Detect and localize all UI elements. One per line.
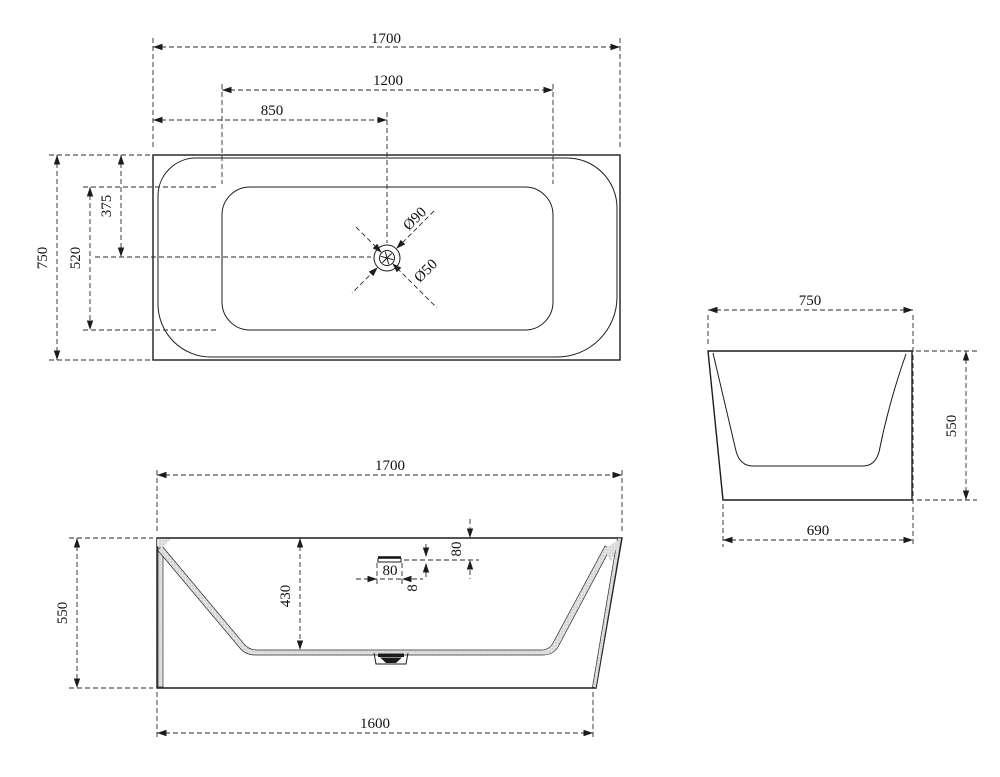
dim-label: 750	[35, 247, 51, 270]
drain-grate-icon	[381, 252, 394, 265]
dim-label: 1700	[375, 458, 405, 474]
dim-side-height: 550	[916, 351, 977, 500]
drain-body	[380, 658, 402, 664]
arrowhead-icon	[87, 187, 93, 197]
arrowhead-icon	[54, 155, 60, 165]
arrowhead-icon	[153, 44, 163, 50]
arrowhead-icon	[74, 679, 80, 689]
arrowhead-icon	[423, 563, 429, 573]
dim-top-overall-width: 750	[35, 155, 151, 360]
dim-top-basin-width: 520	[68, 187, 219, 330]
dim-front-base-length: 1600	[157, 692, 593, 740]
dim-side-width: 750	[708, 293, 913, 546]
dimension-line	[153, 112, 387, 243]
arrowhead-icon	[613, 472, 623, 478]
technical-drawing-canvas: Ø90 Ø50 1700 1200 850 750	[0, 0, 1000, 777]
top-view: Ø90 Ø50 1700 1200 850 750	[35, 31, 620, 360]
arrowhead-icon	[54, 351, 60, 361]
dim-front-inner-depth: 430	[278, 538, 303, 650]
dimension-line	[69, 538, 153, 688]
dim-overflow-slot-height: 8	[405, 544, 429, 592]
arrowhead-icon	[87, 321, 93, 331]
arrowhead-icon	[963, 351, 969, 361]
dimension-line	[708, 310, 913, 546]
arrowhead-icon	[544, 87, 554, 93]
dim-front-overall-length: 1700	[157, 458, 622, 534]
front-drain-assembly	[374, 653, 408, 664]
drain-flange	[378, 654, 404, 658]
side-bowl-profile	[713, 353, 906, 466]
dim-top-drain-from-back: 375	[95, 155, 371, 257]
arrowhead-icon	[368, 576, 378, 582]
arrowhead-icon	[584, 730, 594, 736]
dim-label: 8	[405, 584, 421, 592]
arrowhead-icon	[157, 472, 167, 478]
dim-side-base-width: 690	[723, 504, 913, 547]
dimension-line	[49, 155, 151, 360]
dim-label: 520	[68, 247, 84, 270]
side-outline	[708, 351, 912, 500]
arrowhead-icon	[118, 248, 124, 258]
arrowhead-icon	[611, 44, 621, 50]
dimension-line	[157, 470, 622, 534]
arrowhead-icon	[467, 529, 473, 539]
dim-label: 850	[261, 103, 284, 119]
dim-label: 375	[99, 195, 115, 218]
arrowhead-icon	[297, 538, 303, 548]
arrowhead-icon	[963, 491, 969, 501]
arrowhead-icon	[118, 155, 124, 165]
side-view: 750 550 690	[708, 293, 977, 547]
arrowhead-icon	[157, 730, 167, 736]
dim-label: 1200	[373, 73, 403, 89]
arrowhead-icon	[74, 538, 80, 548]
dim-label: 690	[807, 523, 830, 539]
dim-label: 750	[799, 293, 822, 309]
dim-label: 80	[383, 563, 398, 579]
dim-label: 550	[944, 415, 960, 438]
dim-label: 550	[55, 602, 71, 625]
dim-top-drain-offset: 850	[153, 103, 387, 243]
arrowhead-icon	[423, 548, 429, 558]
corner-wedge-left	[157, 539, 171, 548]
arrowhead-icon	[723, 537, 733, 543]
arrowhead-icon	[153, 117, 163, 123]
dim-label: 1600	[360, 716, 390, 732]
dimension-line	[153, 38, 620, 150]
overflow-slot	[378, 558, 401, 563]
drain-inner-dia-label: Ø50	[411, 256, 441, 286]
dim-overflow-width: 80	[356, 563, 423, 584]
front-view: 1700 550 430 80 8	[55, 458, 622, 740]
dim-label: 80	[449, 542, 465, 557]
arrowhead-icon	[904, 537, 914, 543]
drain-inner-leader	[356, 227, 377, 248]
dimension-line	[404, 519, 479, 579]
dimension-line	[222, 84, 553, 184]
arrowhead-icon	[904, 307, 914, 313]
dim-top-basin-length: 1200	[222, 73, 553, 184]
dim-label: 430	[278, 585, 294, 608]
arrowhead-icon	[297, 641, 303, 651]
arrowhead-icon	[378, 117, 388, 123]
left-wall-band	[158, 545, 163, 687]
dim-overflow-drop: 80	[404, 519, 479, 579]
dim-front-height: 550	[55, 538, 153, 688]
arrowhead-icon	[402, 576, 412, 582]
drawing-sheet: Ø90 Ø50 1700 1200 850 750	[0, 0, 1000, 777]
front-outline	[157, 538, 622, 688]
arrowhead-icon	[222, 87, 232, 93]
arrowhead-icon	[708, 307, 718, 313]
drain-outer-dia-label: Ø90	[400, 204, 430, 234]
arrowhead-icon	[467, 560, 473, 570]
dimension-line	[95, 155, 371, 257]
arrowhead-icon	[369, 265, 380, 276]
dim-label: 1700	[371, 31, 401, 47]
